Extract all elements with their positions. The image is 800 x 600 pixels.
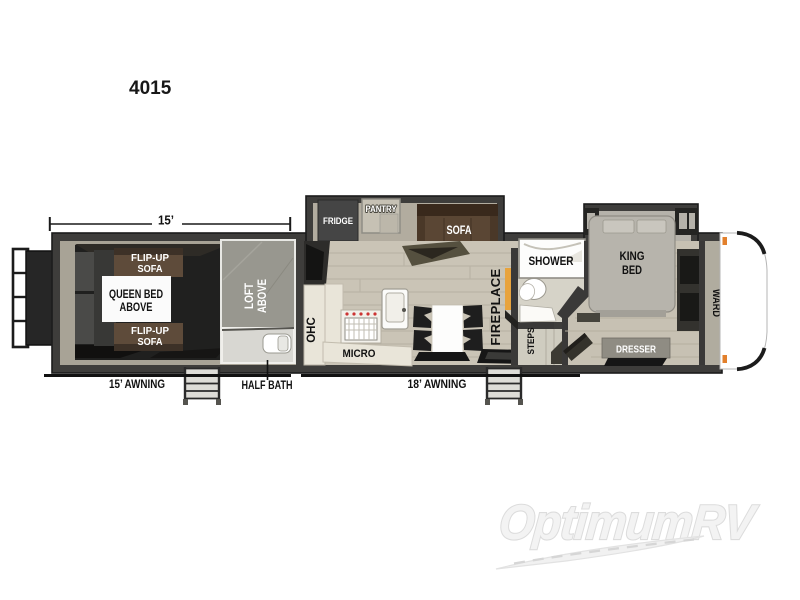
svg-text:FIREPLACE: FIREPLACE (488, 268, 503, 345)
svg-text:SHOWER: SHOWER (529, 254, 574, 268)
svg-text:ABOVE: ABOVE (120, 302, 153, 314)
svg-text:ABOVE: ABOVE (255, 279, 269, 313)
svg-text:KING: KING (620, 251, 645, 263)
svg-text:FLIP-UP: FLIP-UP (131, 253, 169, 264)
svg-text:PANTRY: PANTRY (366, 204, 398, 215)
svg-text:SOFA: SOFA (447, 225, 472, 237)
svg-text:BED: BED (622, 265, 642, 277)
svg-text:FLIP-UP: FLIP-UP (131, 326, 169, 337)
svg-text:18’ AWNING: 18’ AWNING (408, 377, 467, 391)
svg-text:15’ AWNING: 15’ AWNING (109, 377, 165, 391)
svg-text:4015: 4015 (129, 78, 172, 99)
svg-text:LOFT: LOFT (242, 282, 256, 309)
svg-text:15’: 15’ (158, 213, 174, 228)
svg-text:DRESSER: DRESSER (616, 344, 656, 356)
svg-text:STEPS: STEPS (526, 328, 537, 355)
svg-text:QUEEN BED: QUEEN BED (109, 289, 163, 301)
svg-text:SOFA: SOFA (138, 337, 163, 348)
svg-text:OHC: OHC (306, 317, 318, 343)
svg-text:SOFA: SOFA (138, 264, 163, 275)
svg-text:OptimumRV: OptimumRV (497, 496, 761, 550)
svg-text:HALF BATH: HALF BATH (242, 378, 293, 392)
svg-text:FRIDGE: FRIDGE (323, 216, 353, 227)
svg-text:MICRO: MICRO (343, 348, 376, 360)
